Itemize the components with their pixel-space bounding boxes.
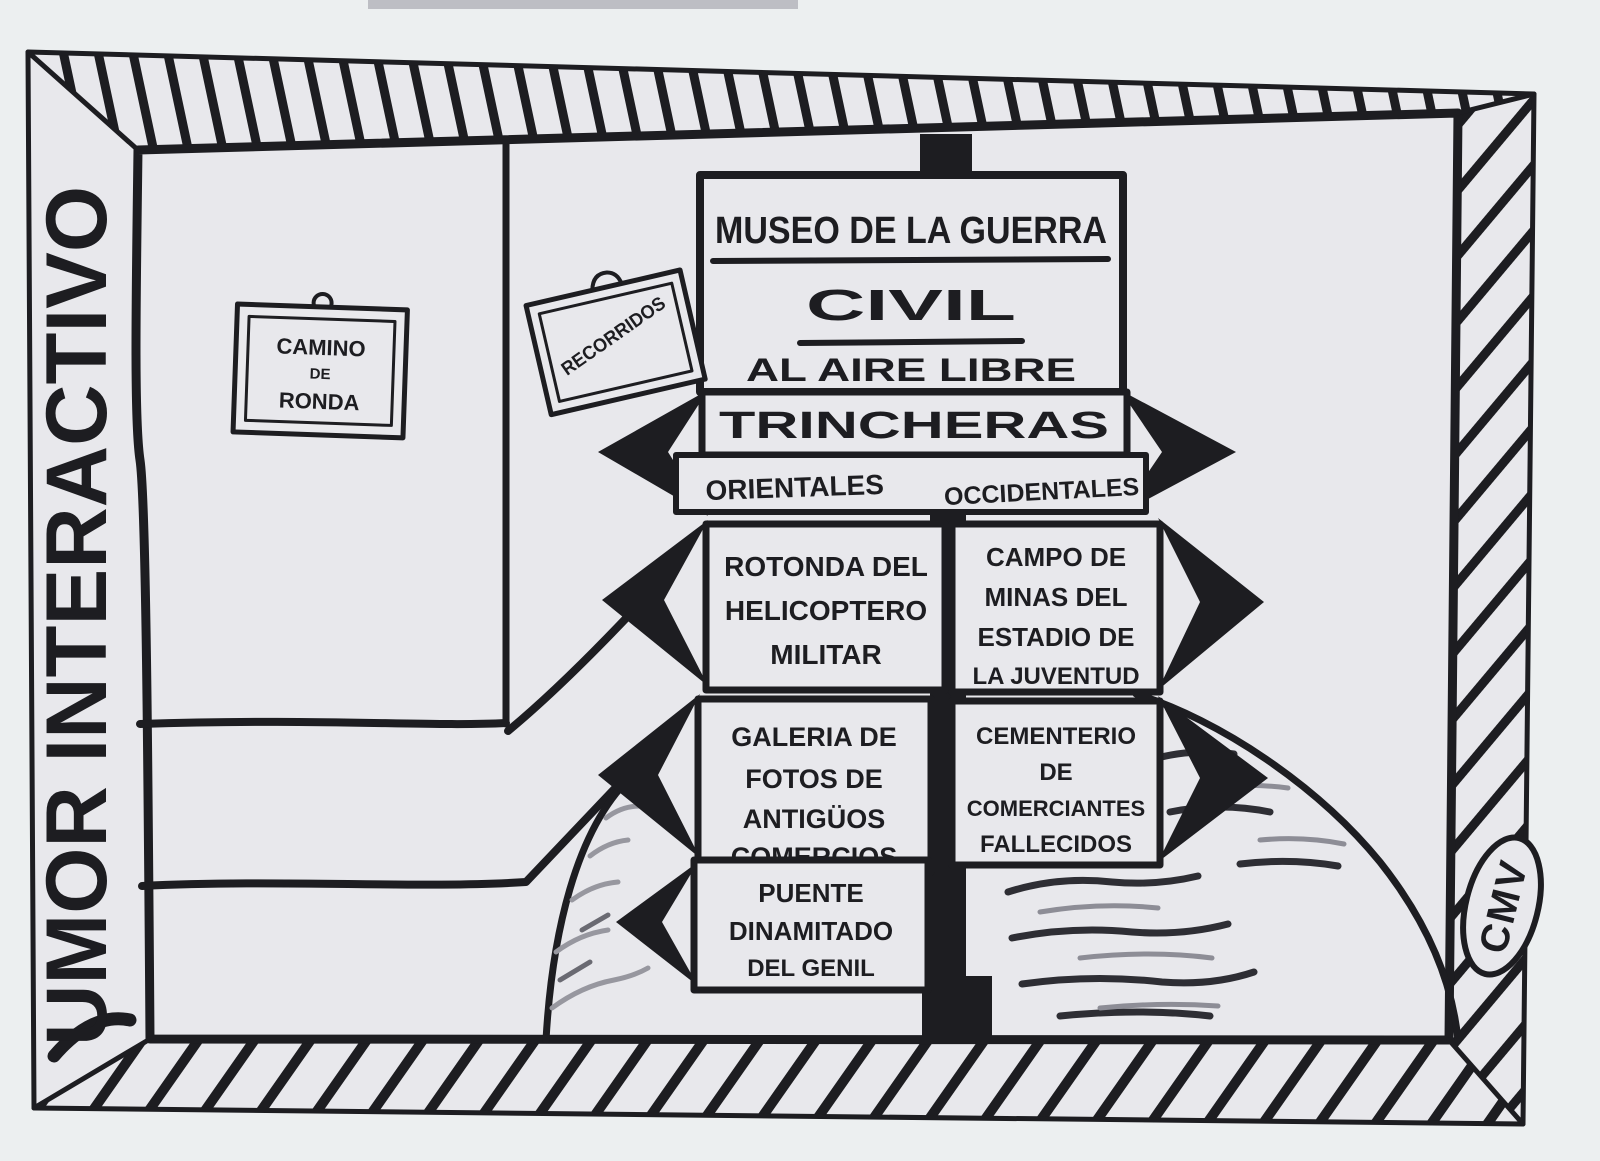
rotonda-line: MILITAR bbox=[770, 639, 881, 670]
road-line-upper bbox=[140, 722, 506, 724]
rotonda-sign: ROTONDA DEL HELICOPTERO MILITAR bbox=[706, 524, 945, 690]
cartoon-drawing: UMOR INTERACTIVO bbox=[0, 0, 1600, 1161]
camino-plaque: CAMINO DE RONDA bbox=[233, 291, 408, 438]
cementerio-line: FALLECIDOS bbox=[980, 831, 1132, 858]
cementerio-line: DE bbox=[1039, 759, 1072, 786]
campo-line: ESTADIO DE bbox=[978, 622, 1135, 652]
cementerio-sign: CEMENTERIO DE COMERCIANTES FALLECIDOS bbox=[952, 701, 1160, 865]
scan-artifact-bar bbox=[368, 0, 798, 9]
campo-line: MINAS DEL bbox=[985, 582, 1128, 612]
scribble-stroke bbox=[1060, 1012, 1210, 1016]
signpost-bottom-pole bbox=[922, 976, 992, 1042]
museum-sign-line3: AL AIRE LIBRE bbox=[746, 352, 1076, 388]
cementerio-line: CEMENTERIO bbox=[976, 723, 1136, 750]
rotonda-line: HELICOPTERO bbox=[725, 595, 927, 626]
campo-sign: CAMPO DE MINAS DEL ESTADIO DE LA JUVENTU… bbox=[952, 524, 1160, 692]
trincheras-sign: TRINCHERAS bbox=[702, 392, 1127, 455]
camino-line: CAMINO bbox=[276, 333, 366, 361]
camino-line: RONDA bbox=[278, 388, 360, 416]
campo-line: CAMPO DE bbox=[986, 542, 1126, 572]
museum-underline-2 bbox=[800, 341, 1022, 343]
puente-sign: PUENTE DINAMITADO DEL GENIL bbox=[694, 860, 928, 990]
directions-left-label: ORIENTALES bbox=[705, 469, 884, 506]
puente-line: DINAMITADO bbox=[729, 916, 893, 946]
rotonda-line: ROTONDA DEL bbox=[724, 551, 928, 582]
museum-underline-1 bbox=[713, 259, 1108, 261]
camino-line: DE bbox=[309, 366, 330, 384]
cementerio-line: COMERCIANTES bbox=[967, 796, 1145, 821]
museum-sign-line2: CIVIL bbox=[806, 281, 1016, 330]
puente-line: PUENTE bbox=[758, 878, 863, 908]
galeria-sign: GALERIA DE FOTOS DE ANTIGÜOS COMERCIOS bbox=[698, 699, 931, 872]
puente-line: DEL GENIL bbox=[747, 955, 875, 982]
galeria-line: ANTIGÜOS bbox=[743, 804, 886, 834]
campo-line: LA JUVENTUD bbox=[972, 663, 1139, 690]
title-block: UMOR INTERACTIVO bbox=[29, 186, 130, 1056]
directions-strip: ORIENTALES OCCIDENTALES bbox=[676, 455, 1146, 512]
museum-sign-line1: MUSEO DE LA GUERRA bbox=[715, 210, 1107, 252]
museum-sign: MUSEO DE LA GUERRA CIVIL AL AIRE LIBRE bbox=[700, 175, 1123, 392]
trincheras-label: TRINCHERAS bbox=[719, 405, 1109, 447]
galeria-line: FOTOS DE bbox=[745, 764, 883, 794]
page-title: UMOR INTERACTIVO bbox=[29, 186, 125, 1046]
galeria-line: GALERIA DE bbox=[731, 722, 897, 752]
cartoon-page: UMOR INTERACTIVO bbox=[0, 0, 1600, 1161]
